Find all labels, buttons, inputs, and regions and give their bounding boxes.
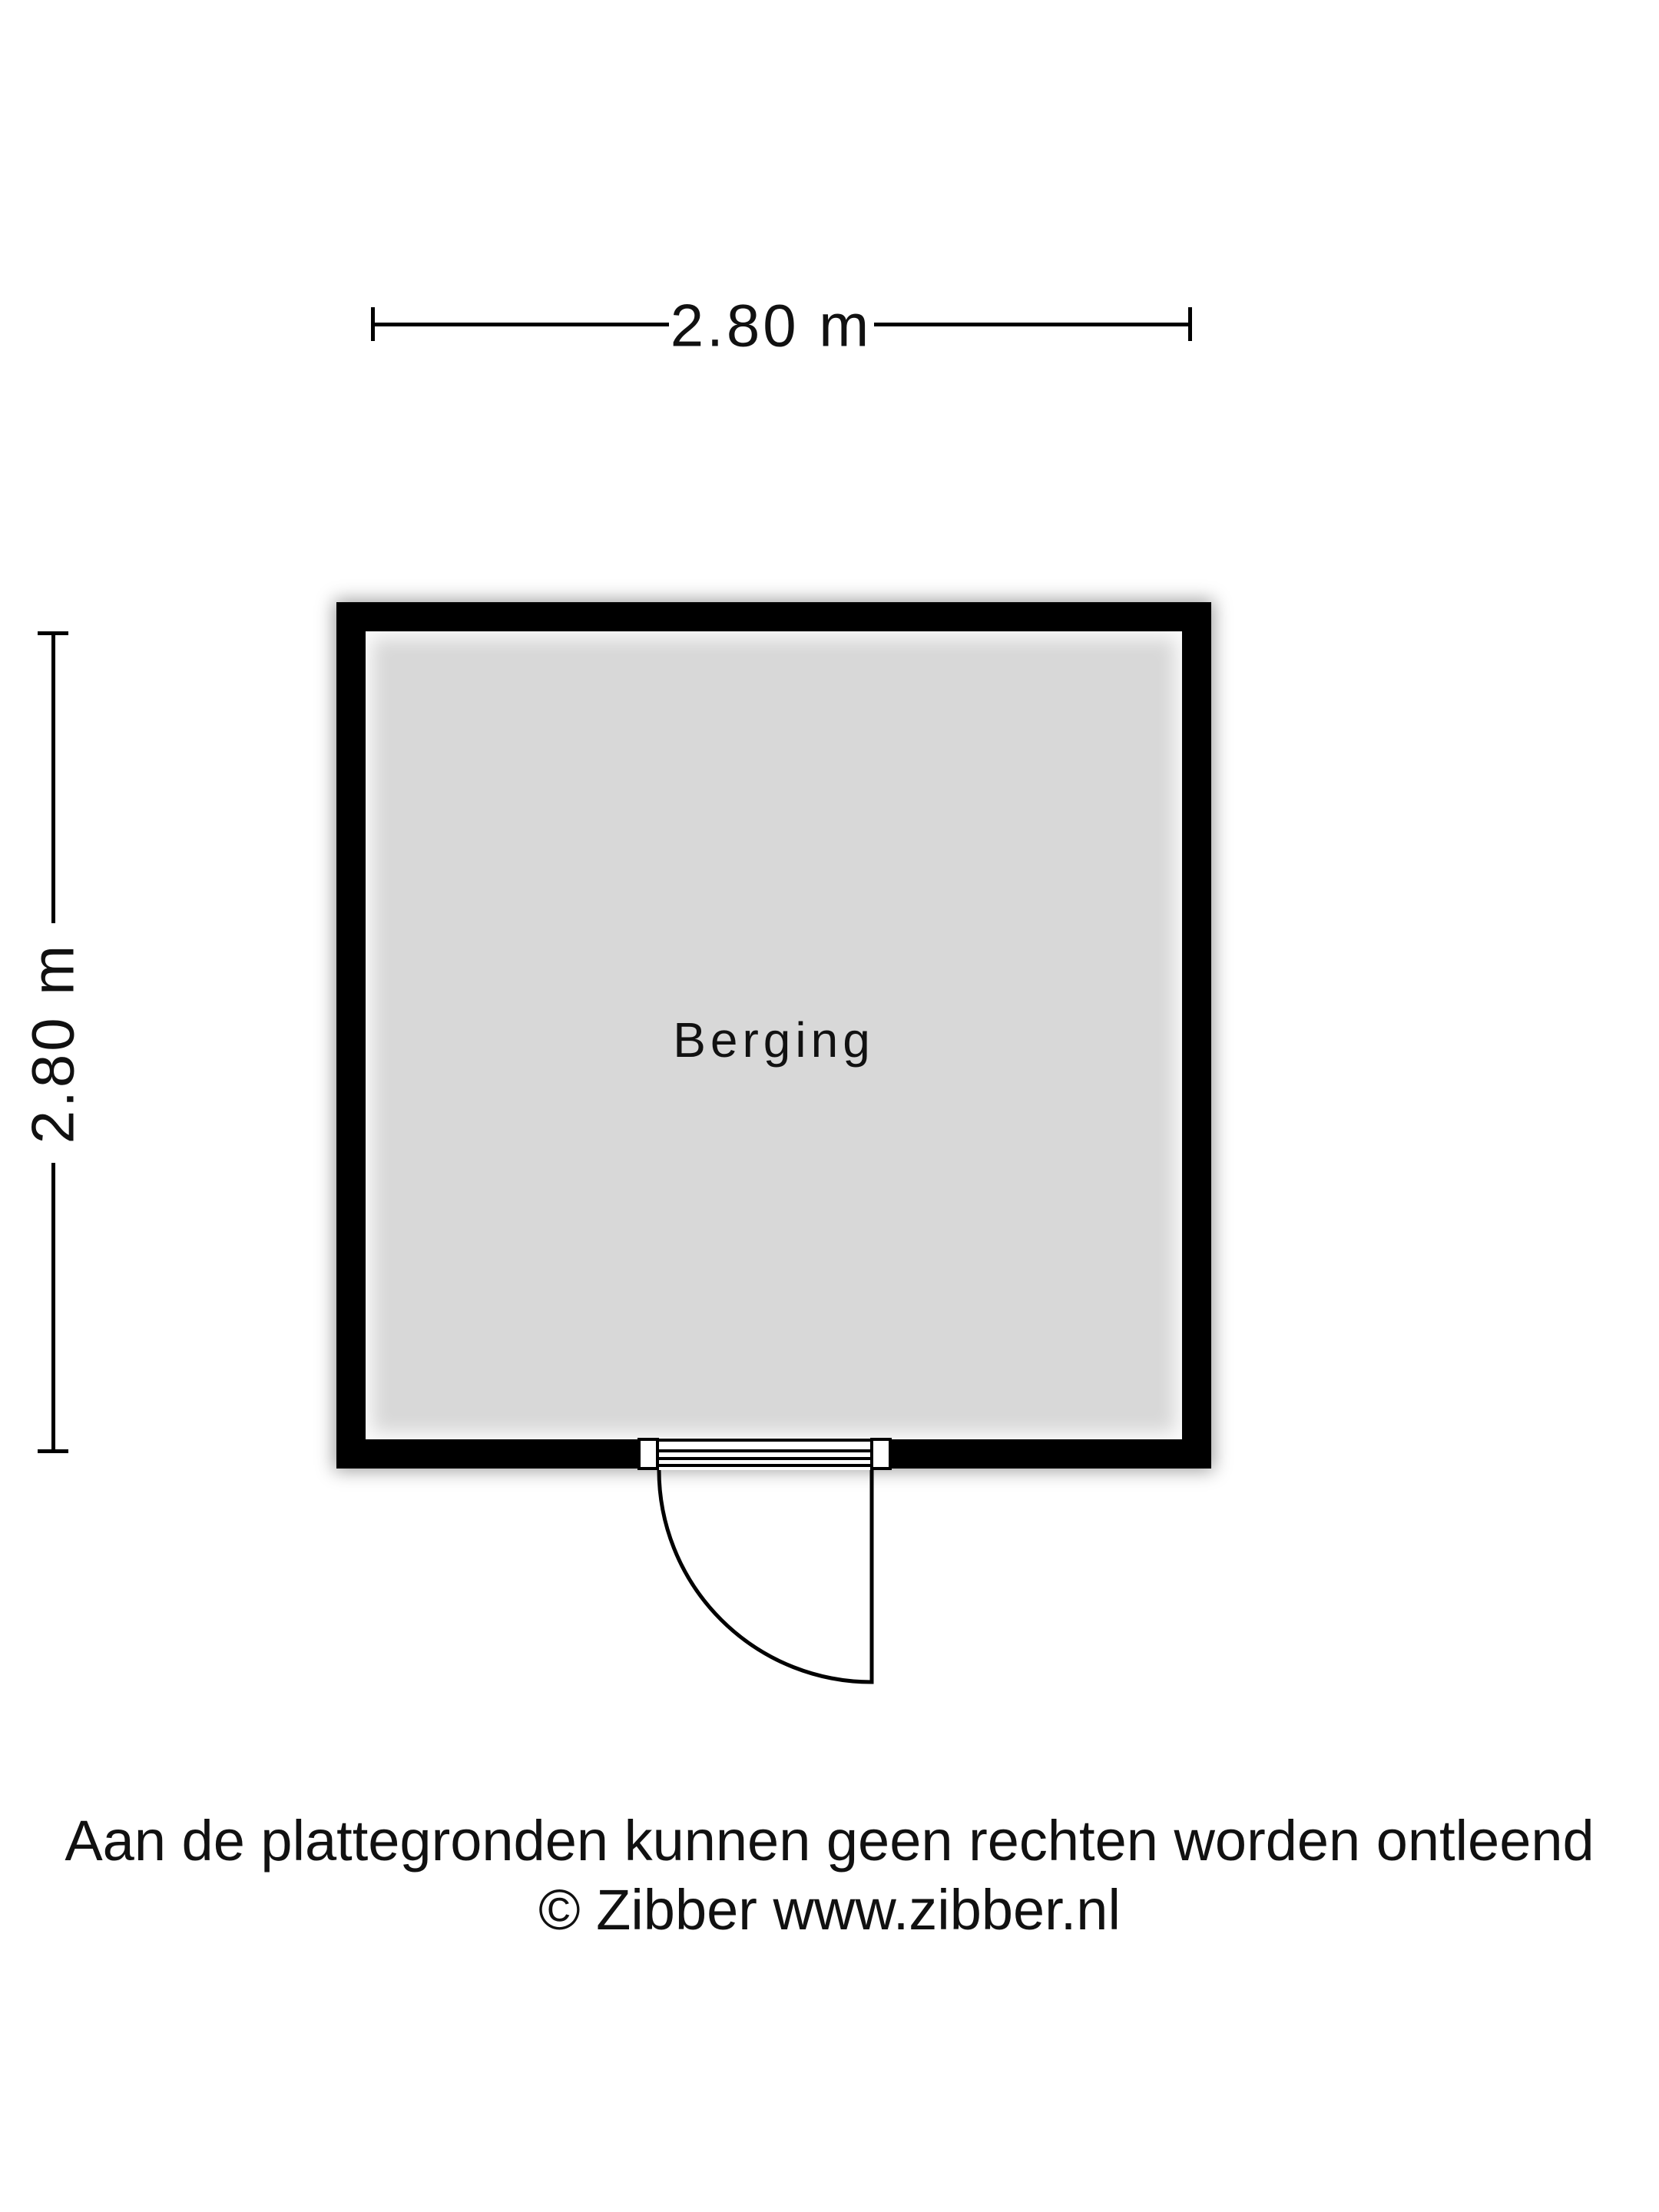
dimension-line-segment-bottom [51,1163,55,1453]
threshold-line [659,1457,870,1460]
door-jamb-left [637,1438,659,1470]
left-dimension-label: 2.80 m [18,942,88,1144]
floorplan-page: 2.80 m 2.80 m Berging Aan de plattegrond… [0,0,1659,2212]
room-label: Berging [673,1012,875,1068]
threshold-line [659,1449,870,1452]
room-berging-floor: Berging [366,631,1182,1439]
dimension-line-segment-top [51,631,55,923]
top-dimension-label: 2.80 m [671,291,872,361]
dimension-line-segment-right [874,323,1190,326]
disclaimer-text: Aan de plattegronden kunnen geen rechten… [0,1806,1659,1876]
footer: Aan de plattegronden kunnen geen rechten… [0,1806,1659,1945]
dimension-line-segment-left [371,323,669,326]
door-threshold [659,1438,870,1470]
threshold-line [659,1464,870,1467]
copyright-text: © Zibber www.zibber.nl [0,1876,1659,1945]
room-berging-outline: Berging [336,602,1211,1469]
door-jamb-right [870,1438,892,1470]
threshold-line [659,1439,870,1442]
door-opening [637,1438,892,1470]
dimension-tick-right [1188,307,1192,341]
door-leaf-and-arc-path [659,1470,872,1682]
dimension-tick-bottom [38,1449,68,1453]
